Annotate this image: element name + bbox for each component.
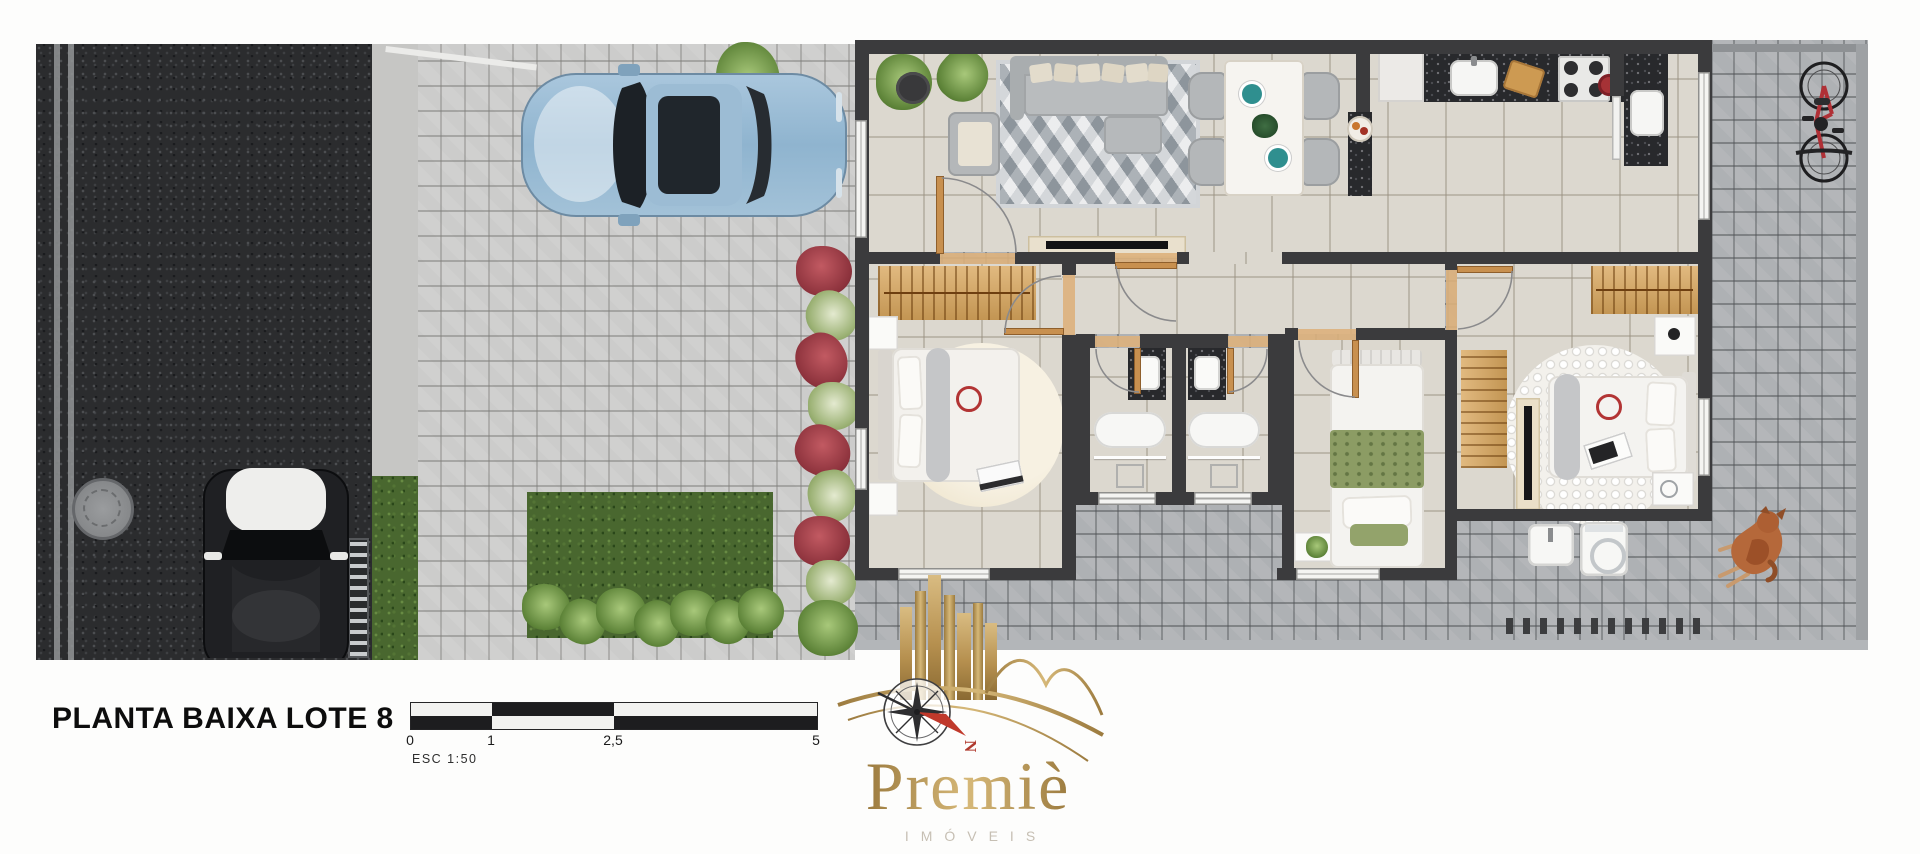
- green-blanket: [1330, 430, 1424, 488]
- sofa-pillow: [1077, 63, 1100, 83]
- wall-kitchen-stub: [1356, 52, 1370, 112]
- wall-master-west: [1445, 330, 1457, 521]
- wardrobe: [1591, 266, 1698, 314]
- laptop-keyboard: [1588, 441, 1618, 464]
- brand-name: Premiè: [866, 748, 1071, 824]
- wall-exterior-top: [855, 40, 1712, 54]
- door-threshold-bedroom1: [1063, 275, 1075, 335]
- dining-chair: [1302, 72, 1340, 120]
- burner: [1589, 61, 1603, 75]
- scale-tick-label: 0: [406, 732, 414, 748]
- red-plant: [794, 516, 850, 566]
- washer-door: [1590, 538, 1626, 574]
- armchair: [948, 112, 1000, 176]
- shrub: [738, 588, 784, 634]
- window-master: [1698, 398, 1710, 476]
- faucet: [1471, 56, 1477, 66]
- wall-master-west: [1445, 252, 1457, 270]
- sofa-arm: [1010, 56, 1024, 120]
- wall-bedroom1-east: [1062, 335, 1076, 568]
- drainage-grates: [1506, 618, 1706, 634]
- bed-headboard: [878, 350, 892, 480]
- storm-drain-grate: [350, 540, 367, 656]
- dining-chair: [1188, 138, 1226, 186]
- shower-drain: [1210, 464, 1238, 488]
- yard-edge-top: [1706, 44, 1868, 52]
- scale-bar: [410, 702, 818, 730]
- scale-tick-label: 1: [487, 732, 495, 748]
- scale-segment: [614, 703, 817, 716]
- kitchen-cabinet: [1378, 52, 1424, 102]
- wardrobe-rail: [1596, 289, 1693, 291]
- door-swing-arc: [941, 177, 1019, 255]
- door-threshold-bedroom2: [1298, 329, 1356, 340]
- parked-car-black: [202, 466, 350, 658]
- wall-living-south: [1177, 252, 1189, 264]
- burner: [1564, 83, 1578, 97]
- nightstand: [1652, 472, 1694, 506]
- scale-segment: [492, 716, 614, 729]
- dog: [1712, 506, 1796, 594]
- scale-segment: [411, 716, 492, 729]
- sofa-pillow: [1101, 63, 1125, 84]
- fruit: [1352, 122, 1360, 130]
- scale-esc-label: ESC 1:50: [412, 752, 478, 766]
- window-bathroom-1: [1098, 492, 1156, 505]
- decor-vase: [1668, 328, 1680, 340]
- wall-living-south: [1282, 252, 1698, 264]
- wall-bedroom1-east: [1062, 264, 1076, 275]
- door-swing-arc: [1457, 270, 1513, 330]
- kitchen-sink: [1450, 60, 1498, 96]
- wall-bath-south: [1076, 492, 1098, 505]
- door-swing-arc: [1298, 340, 1356, 398]
- lane-marking: [68, 44, 74, 660]
- shower-drain: [1116, 464, 1144, 488]
- bathroom-sink: [1194, 356, 1220, 390]
- blanket-roll: [1554, 374, 1580, 480]
- scale-segment: [614, 716, 817, 729]
- window-bedroom1: [855, 428, 867, 490]
- small-palm: [1306, 536, 1328, 558]
- grass-strip: [372, 476, 418, 660]
- nightstand: [868, 482, 898, 516]
- headphones: [956, 386, 982, 412]
- side-table: [896, 72, 930, 104]
- washer-panel: [1585, 525, 1623, 532]
- sofa-chaise: [1104, 116, 1162, 154]
- wall-living-south: [1015, 252, 1115, 264]
- scale-segment: [492, 703, 614, 716]
- wall-bedroom2-west: [1282, 340, 1294, 580]
- sofa-pillow: [1147, 63, 1168, 82]
- dining-chair: [1188, 72, 1226, 120]
- cup: [1660, 480, 1678, 498]
- wall-bath-center: [1172, 348, 1186, 505]
- wall-bedroom2-south: [1277, 568, 1296, 580]
- logo-buildings-icon: [838, 575, 1103, 761]
- nightstand: [1654, 316, 1696, 356]
- wardrobe-tall: [1461, 350, 1507, 468]
- pillow: [1645, 381, 1677, 427]
- burner: [1564, 61, 1578, 75]
- door-threshold-master: [1446, 270, 1457, 330]
- door-swing-arc: [1004, 275, 1062, 335]
- wall-bath-south: [1156, 492, 1194, 505]
- dinner-plate: [1242, 84, 1262, 104]
- wall-living-south: [855, 252, 940, 264]
- door-threshold-bath2: [1228, 336, 1268, 347]
- wall-bath-west: [1076, 348, 1090, 505]
- window-kitchen: [1698, 72, 1710, 220]
- shower-glass: [1188, 456, 1260, 459]
- sofa-pillow: [1125, 63, 1149, 84]
- wall-master-south: [1445, 509, 1710, 521]
- brand-subtitle: IMÓVEIS: [905, 828, 1047, 844]
- scale-tick-label: 5: [812, 732, 820, 748]
- pillow: [897, 413, 924, 468]
- bathtub: [1094, 412, 1166, 448]
- tv-screen: [1524, 406, 1532, 500]
- table-centerpiece: [1252, 114, 1278, 138]
- window-bathroom-2: [1194, 492, 1252, 505]
- manhole-cover: [72, 478, 134, 540]
- door-threshold-bath1: [1095, 336, 1140, 347]
- wall-bath-north: [1076, 334, 1095, 348]
- window-living: [855, 120, 867, 238]
- dinner-plate: [1268, 148, 1288, 168]
- floor-plan-canvas: N Premiè IMÓVEIS PLANTA BAIXA LOTE 8 0 1…: [0, 0, 1920, 854]
- wall-pantry-stub: [1610, 52, 1624, 96]
- scale-tick-label: 2,5: [603, 732, 622, 748]
- green-cushion: [1350, 524, 1408, 546]
- wall-bedroom2-north: [1285, 328, 1298, 340]
- fruit: [1360, 127, 1368, 135]
- plan-title: PLANTA BAIXA LOTE 8: [52, 702, 394, 736]
- sofa-pillow: [1053, 63, 1077, 83]
- pillow: [1645, 427, 1677, 473]
- scale-segment: [411, 703, 492, 716]
- fruit-bowl: [1347, 116, 1373, 142]
- wall-bath-east: [1268, 348, 1282, 505]
- blanket-roll: [926, 348, 950, 482]
- nightstand: [868, 316, 898, 350]
- window-bedroom2: [1296, 568, 1380, 580]
- floor-opening: [1189, 252, 1282, 264]
- red-plant: [796, 246, 852, 296]
- tv-screen: [1046, 241, 1168, 249]
- brand-logo: N Premiè IMÓVEIS: [818, 565, 1118, 854]
- wall-bedroom2-north: [1356, 328, 1445, 340]
- sofa-pillow: [1029, 63, 1053, 84]
- door-swing-arc: [1228, 348, 1268, 393]
- pillow: [897, 355, 924, 410]
- washing-machine: [1580, 522, 1628, 576]
- dining-chair: [1302, 138, 1340, 186]
- armchair-cushion: [958, 122, 992, 166]
- faucet: [1548, 528, 1553, 542]
- headphones: [1596, 394, 1622, 420]
- shower-glass: [1094, 456, 1166, 459]
- bicycle: [1788, 56, 1860, 190]
- wall-bath-north: [1140, 334, 1228, 348]
- wall-bedroom2-south: [1380, 568, 1457, 580]
- laundry-tub: [1630, 90, 1664, 136]
- parked-car-blue: [518, 64, 850, 226]
- bathtub: [1188, 412, 1260, 448]
- door-swing-arc: [1115, 258, 1177, 322]
- service-sink: [1528, 524, 1574, 566]
- manhole-ring: [83, 489, 121, 527]
- wall-bath-south: [1252, 492, 1285, 505]
- lane-marking: [54, 44, 60, 660]
- sliding-door-pantry: [1612, 96, 1621, 160]
- door-swing-arc: [1095, 348, 1140, 393]
- pale-plant: [808, 382, 860, 430]
